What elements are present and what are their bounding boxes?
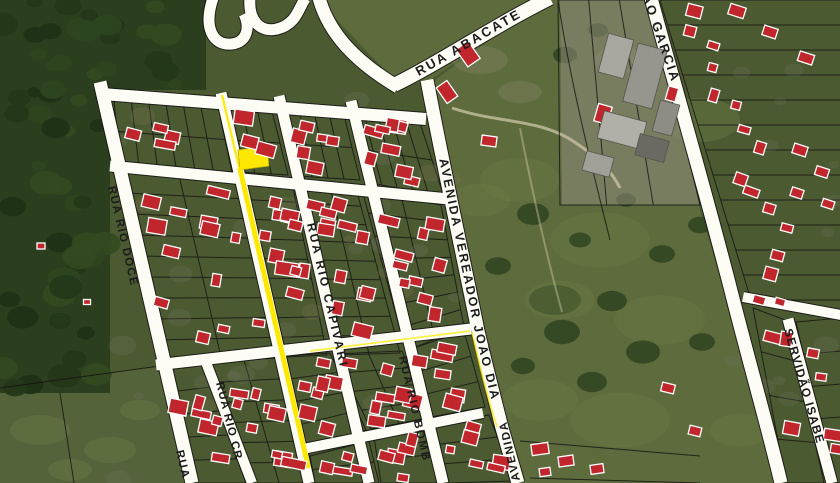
satellite-map[interactable]: RUA RIO DOCERUARUA RIO CAPIVARIRUA RIO C… (0, 0, 840, 483)
map-canvas[interactable]: RUA RIO DOCERUARUA RIO CAPIVARIRUA RIO C… (0, 0, 840, 483)
